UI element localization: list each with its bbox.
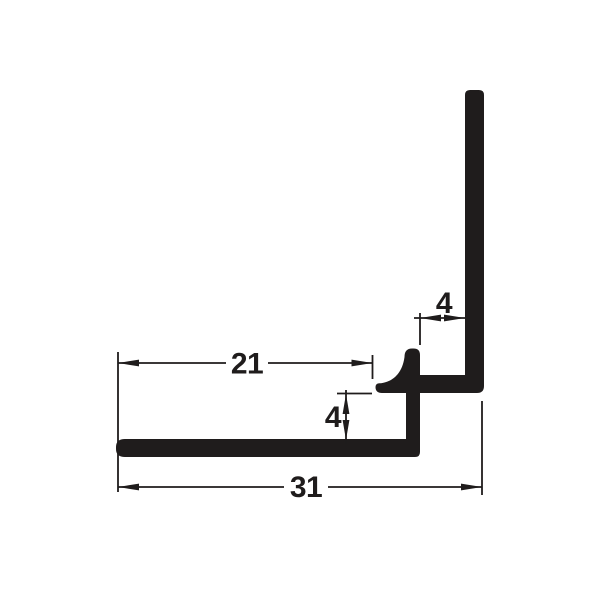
profile-shape <box>116 90 484 457</box>
arrowhead-down-icon <box>343 420 350 440</box>
dimension-label-31: 31 <box>290 471 322 504</box>
dimension-4-bottom: 4 <box>325 390 349 444</box>
dimension-21: 21 <box>118 348 373 381</box>
dimension-label-21: 21 <box>231 348 263 381</box>
dimension-label-4-bottom: 4 <box>325 401 342 434</box>
dimension-31: 31 <box>118 471 482 504</box>
extension-lines <box>118 313 482 495</box>
arrowhead-up-icon <box>343 394 350 414</box>
profile-technical-drawing: 21 4 4 31 <box>0 0 600 600</box>
drawing-canvas: 21 4 4 31 <box>0 0 600 600</box>
arrowhead-left-icon <box>118 484 139 491</box>
arrowhead-left-icon <box>118 360 139 367</box>
dimension-4-top: 4 <box>414 287 469 321</box>
dimension-label-4-top: 4 <box>436 287 453 320</box>
arrowhead-right-icon <box>461 484 482 491</box>
arrowhead-right-icon <box>352 360 373 367</box>
